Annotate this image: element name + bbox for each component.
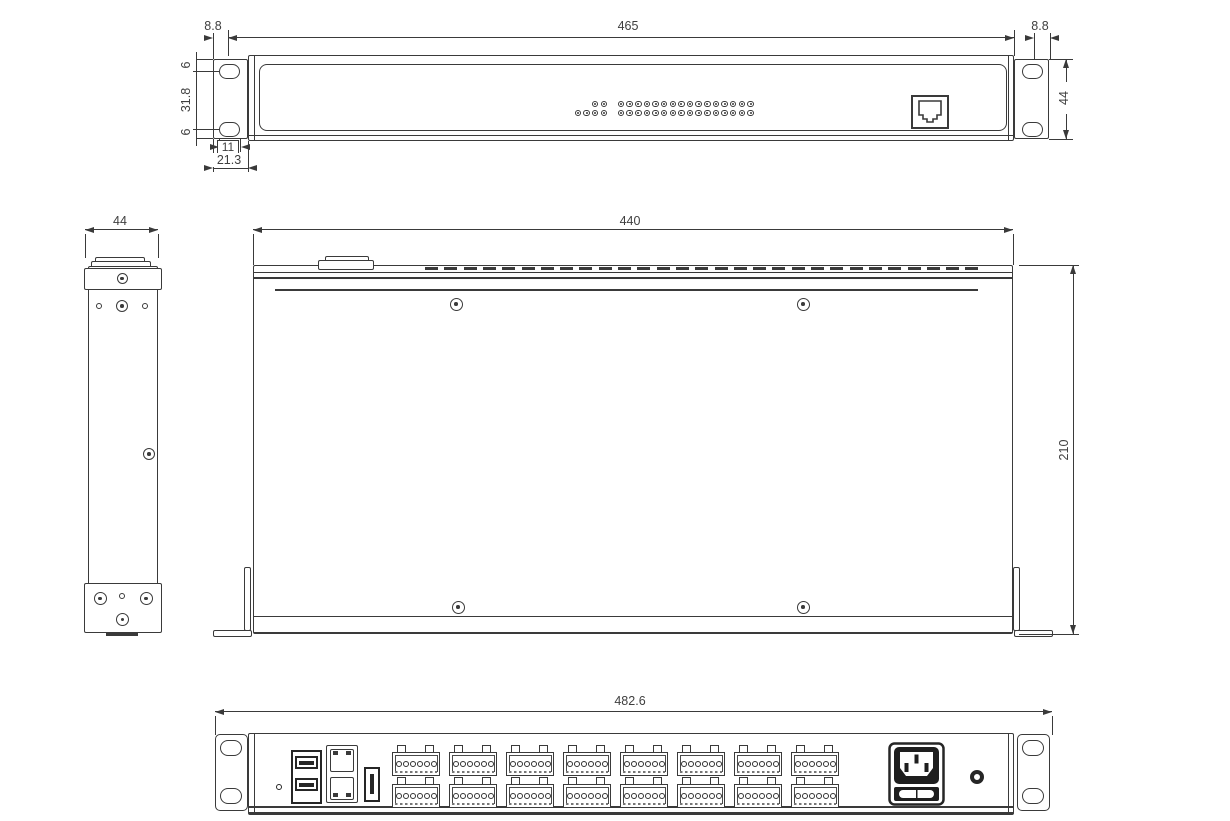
top-left-ear-flange <box>213 630 252 637</box>
arrowhead <box>85 227 94 233</box>
front-led <box>678 110 685 117</box>
terminal-pin <box>638 761 644 767</box>
front-led <box>721 110 728 117</box>
rear-led-hole <box>276 784 282 790</box>
dim-line-ear-width <box>213 168 248 169</box>
rear-mounting-slot <box>220 788 242 804</box>
front-face-panel <box>259 64 1007 131</box>
terminal-block <box>449 777 497 809</box>
terminal-pin <box>645 761 651 767</box>
terminal-pin <box>524 761 530 767</box>
terminal-pin <box>403 761 409 767</box>
rear-round-hole <box>970 770 984 784</box>
dim-line-top-depth <box>1073 265 1074 634</box>
arrowhead <box>248 165 257 171</box>
terminal-pin <box>702 761 708 767</box>
arrowhead <box>1070 625 1076 634</box>
top-front-edge-line <box>253 272 1013 273</box>
terminal-pin <box>688 761 694 767</box>
terminal-block-serration <box>566 771 608 774</box>
terminal-pin <box>581 761 587 767</box>
top-vent-slot <box>599 267 612 270</box>
terminal-block <box>677 777 725 809</box>
top-vent-slot <box>444 267 457 270</box>
terminal-pin <box>417 793 423 799</box>
top-rear-edge-line <box>253 616 1013 617</box>
terminal-block <box>734 777 782 809</box>
front-led <box>704 101 711 108</box>
terminal-pin <box>745 761 751 767</box>
terminal-block-serration <box>452 771 494 774</box>
dim-line-rear-width <box>215 711 1052 712</box>
terminal-pin <box>410 793 416 799</box>
terminal-pin <box>688 793 694 799</box>
terminal-pin <box>581 793 587 799</box>
top-vent-slot <box>811 267 824 270</box>
arrowhead <box>1004 227 1013 233</box>
top-vent-slot <box>637 267 650 270</box>
screw <box>116 300 128 312</box>
terminal-pin <box>766 761 772 767</box>
terminal-block <box>791 777 839 809</box>
arrowhead <box>1070 265 1076 274</box>
arrowhead <box>1050 35 1059 41</box>
terminal-pin <box>716 793 722 799</box>
rear-chassis-inner-line <box>254 733 255 815</box>
top-vent-slot <box>734 267 747 270</box>
terminal-pin <box>645 793 651 799</box>
screw <box>797 298 810 311</box>
terminal-pin <box>602 793 608 799</box>
terminal-block-serration <box>509 803 551 806</box>
terminal-pin <box>488 761 494 767</box>
terminal-block-serration <box>395 803 437 806</box>
arrowhead <box>228 35 237 41</box>
terminal-pin <box>517 793 523 799</box>
terminal-pin <box>431 761 437 767</box>
extension-tick <box>191 71 219 72</box>
terminal-pin <box>709 761 715 767</box>
terminal-pin <box>396 793 402 799</box>
front-mounting-slot <box>219 122 240 137</box>
terminal-pin <box>453 761 459 767</box>
top-front-edge-line <box>253 277 1013 279</box>
front-led <box>635 110 642 117</box>
side-foot <box>106 633 138 636</box>
terminal-pin <box>709 793 715 799</box>
dim-ear-hole-top-offset: 6 <box>179 50 193 80</box>
top-vent-slot <box>425 267 438 270</box>
top-vent-slot <box>830 267 843 270</box>
front-led <box>747 101 754 108</box>
front-led <box>695 110 702 117</box>
terminal-pin <box>538 761 544 767</box>
dim-line-side-width <box>85 229 158 230</box>
terminal-pin <box>460 793 466 799</box>
usb-tongue <box>370 774 375 794</box>
arrowhead <box>1063 130 1069 139</box>
mechanical-drawing-canvas: 8.8 465 8.8 44 6 31.8 6 <box>0 0 1230 821</box>
terminal-pin <box>809 793 815 799</box>
terminal-block <box>620 745 668 777</box>
terminal-pin <box>510 761 516 767</box>
dim-side-width: 44 <box>103 214 137 228</box>
extension-tick <box>191 129 219 130</box>
front-chassis-inner-line <box>254 55 255 141</box>
terminal-pin <box>631 761 637 767</box>
front-led <box>626 101 633 108</box>
top-vent-slot <box>579 267 592 270</box>
terminal-block-serration <box>566 803 608 806</box>
terminal-block-serration <box>794 771 836 774</box>
terminal-pin <box>467 761 473 767</box>
screw <box>450 298 463 311</box>
top-vent-slot <box>715 267 728 270</box>
screw <box>452 601 465 614</box>
top-vent-slot <box>522 267 535 270</box>
terminal-pin <box>517 761 523 767</box>
rj45-latch-tab <box>333 793 338 797</box>
top-vent-slot <box>792 267 805 270</box>
terminal-pin <box>638 793 644 799</box>
terminal-pin <box>588 793 594 799</box>
screw <box>116 613 129 626</box>
terminal-block <box>563 745 611 777</box>
extension-line <box>1050 30 1051 59</box>
terminal-pin <box>745 793 751 799</box>
extension-line <box>215 716 216 735</box>
rear-mounting-slot <box>1022 788 1044 804</box>
terminal-pin <box>830 793 836 799</box>
terminal-pin <box>595 793 601 799</box>
terminal-block <box>620 777 668 809</box>
terminal-block-serration <box>452 803 494 806</box>
terminal-pin <box>681 793 687 799</box>
extension-line <box>213 30 214 59</box>
top-vent-slot <box>772 267 785 270</box>
usb-tongue <box>299 761 314 765</box>
extension-tick <box>196 59 213 60</box>
terminal-pin <box>702 793 708 799</box>
terminal-block <box>563 777 611 809</box>
arrowhead <box>253 227 262 233</box>
terminal-pin <box>816 793 822 799</box>
top-right-ear-plate <box>1013 567 1020 631</box>
terminal-block-serration <box>680 771 722 774</box>
front-led <box>678 101 685 108</box>
terminal-pin <box>431 793 437 799</box>
rear-mounting-slot <box>1022 740 1044 756</box>
front-mounting-slot <box>1022 64 1043 79</box>
top-vent-slot <box>483 267 496 270</box>
front-led <box>635 101 642 108</box>
terminal-pin <box>830 761 836 767</box>
terminal-pin <box>738 793 744 799</box>
rj45-latch-tab <box>333 751 338 755</box>
screw <box>143 448 155 460</box>
power-inlet-c14 <box>888 742 945 806</box>
terminal-pin <box>474 761 480 767</box>
front-mounting-slot <box>1022 122 1043 137</box>
extension-line <box>1014 30 1015 56</box>
terminal-pin <box>510 793 516 799</box>
terminal-pin <box>467 793 473 799</box>
extension-line <box>158 234 159 258</box>
top-vent-slot <box>908 267 921 270</box>
top-vent-slot <box>869 267 882 270</box>
terminal-block-serration <box>737 803 779 806</box>
terminal-pin <box>545 793 551 799</box>
front-led <box>704 110 711 117</box>
arrowhead <box>149 227 158 233</box>
rear-chassis-inner-line <box>1008 733 1009 815</box>
extension-line <box>1013 234 1014 265</box>
top-vent-slot <box>850 267 863 270</box>
rj45-latch-tab <box>346 793 351 797</box>
extension-line <box>253 234 254 265</box>
terminal-block <box>449 745 497 777</box>
extension-line <box>1049 139 1073 140</box>
dim-top-depth: 210 <box>1057 434 1071 466</box>
side-hole <box>96 303 102 309</box>
front-led <box>652 101 659 108</box>
terminal-block-serration <box>794 803 836 806</box>
front-led <box>721 101 728 108</box>
arrowhead <box>1043 709 1052 715</box>
top-vent-slot <box>502 267 515 270</box>
front-led <box>695 101 702 108</box>
front-chassis-inner-line <box>248 135 1014 136</box>
extension-line <box>1049 59 1073 60</box>
top-tab <box>318 260 374 270</box>
top-vent-slot <box>657 267 670 270</box>
extension-line <box>1052 716 1053 735</box>
terminal-block <box>392 745 440 777</box>
terminal-pin <box>823 793 829 799</box>
extension-line <box>85 234 86 258</box>
terminal-block-serration <box>623 803 665 806</box>
top-vent-slot <box>965 267 978 270</box>
terminal-pin <box>681 761 687 767</box>
terminal-pin <box>759 793 765 799</box>
terminal-pin <box>481 761 487 767</box>
top-body <box>253 265 1013 634</box>
terminal-pin <box>488 793 494 799</box>
terminal-block <box>506 777 554 809</box>
terminal-block-serration <box>509 771 551 774</box>
terminal-block-serration <box>623 771 665 774</box>
dim-line-top-width <box>253 229 1013 230</box>
dim-ear-width: 21.3 <box>210 153 248 167</box>
terminal-pin <box>574 761 580 767</box>
screw <box>117 273 128 284</box>
terminal-pin <box>738 761 744 767</box>
terminal-pin <box>773 761 779 767</box>
terminal-pin <box>531 793 537 799</box>
top-vent-slot <box>946 267 959 270</box>
dim-front-panel-height: 44 <box>1057 82 1071 114</box>
terminal-block <box>791 745 839 777</box>
terminal-pin <box>695 761 701 767</box>
terminal-pin <box>453 793 459 799</box>
terminal-pin <box>795 793 801 799</box>
top-vent-slot <box>618 267 631 270</box>
arrowhead <box>215 709 224 715</box>
terminal-pin <box>545 761 551 767</box>
terminal-pin <box>809 761 815 767</box>
rj45-latch-tab <box>346 751 351 755</box>
terminal-pin <box>595 761 601 767</box>
terminal-pin <box>752 761 758 767</box>
terminal-pin <box>816 761 822 767</box>
terminal-pin <box>524 793 530 799</box>
dim-front-right-ear-hole-offset: 8.8 <box>1025 19 1055 33</box>
front-mounting-slot <box>219 64 240 79</box>
front-led <box>626 110 633 117</box>
rj45-port-icon <box>911 95 949 129</box>
terminal-pin <box>481 793 487 799</box>
terminal-pin <box>531 761 537 767</box>
terminal-pin <box>659 793 665 799</box>
dim-front-left-ear-hole-offset: 8.8 <box>198 19 228 33</box>
terminal-pin <box>417 761 423 767</box>
terminal-pin <box>602 761 608 767</box>
terminal-block <box>677 745 725 777</box>
terminal-pin <box>403 793 409 799</box>
dim-line-front-width <box>228 37 1014 38</box>
top-vent-slot <box>560 267 573 270</box>
top-vent-slot <box>541 267 554 270</box>
terminal-block-serration <box>737 771 779 774</box>
top-left-ear-plate <box>244 567 251 631</box>
terminal-pin <box>766 793 772 799</box>
terminal-pin <box>823 761 829 767</box>
side-hole <box>119 593 125 599</box>
front-chassis-inner-line <box>1008 55 1009 141</box>
terminal-pin <box>795 761 801 767</box>
terminal-pin <box>759 761 765 767</box>
terminal-pin <box>574 793 580 799</box>
dim-ear-hole-span: 31.8 <box>179 85 193 115</box>
front-led <box>583 110 590 117</box>
usb-tongue <box>299 783 314 787</box>
terminal-pin <box>652 793 658 799</box>
dim-rear-overall-width: 482.6 <box>603 694 657 708</box>
arrowhead <box>1063 59 1069 68</box>
terminal-block-serration <box>395 771 437 774</box>
terminal-pin <box>652 761 658 767</box>
terminal-pin <box>624 793 630 799</box>
terminal-pin <box>695 793 701 799</box>
terminal-pin <box>773 793 779 799</box>
terminal-pin <box>410 761 416 767</box>
terminal-pin <box>460 761 466 767</box>
terminal-pin <box>567 761 573 767</box>
side-hole <box>142 303 148 309</box>
dim-top-width: 440 <box>610 214 650 228</box>
terminal-pin <box>567 793 573 799</box>
terminal-pin <box>659 761 665 767</box>
top-vent-slot <box>676 267 689 270</box>
screw <box>140 592 153 605</box>
terminal-block-serration <box>680 803 722 806</box>
terminal-pin <box>802 761 808 767</box>
top-vent-slot <box>464 267 477 270</box>
top-vent-slot <box>888 267 901 270</box>
top-vent-slot <box>695 267 708 270</box>
terminal-pin <box>424 793 430 799</box>
terminal-pin <box>474 793 480 799</box>
front-led <box>747 110 754 117</box>
top-vent-slot <box>753 267 766 270</box>
terminal-block <box>392 777 440 809</box>
screw <box>797 601 810 614</box>
dim-ear-hole-bottom-offset: 6 <box>179 117 193 147</box>
rear-mounting-slot <box>220 740 242 756</box>
terminal-pin <box>802 793 808 799</box>
top-lid-edge-line <box>275 289 978 291</box>
terminal-pin <box>396 761 402 767</box>
extension-line <box>228 30 229 56</box>
front-led <box>652 110 659 117</box>
terminal-pin <box>624 761 630 767</box>
terminal-pin <box>752 793 758 799</box>
terminal-pin <box>538 793 544 799</box>
dim-line-ear-holes <box>196 52 197 146</box>
extension-tick <box>196 138 213 139</box>
top-vent-slot <box>927 267 940 270</box>
screw <box>94 592 107 605</box>
terminal-pin <box>588 761 594 767</box>
terminal-pin <box>716 761 722 767</box>
terminal-block <box>506 745 554 777</box>
dim-front-panel-width: 465 <box>598 19 658 33</box>
terminal-pin <box>631 793 637 799</box>
terminal-pin <box>424 761 430 767</box>
terminal-block <box>734 745 782 777</box>
